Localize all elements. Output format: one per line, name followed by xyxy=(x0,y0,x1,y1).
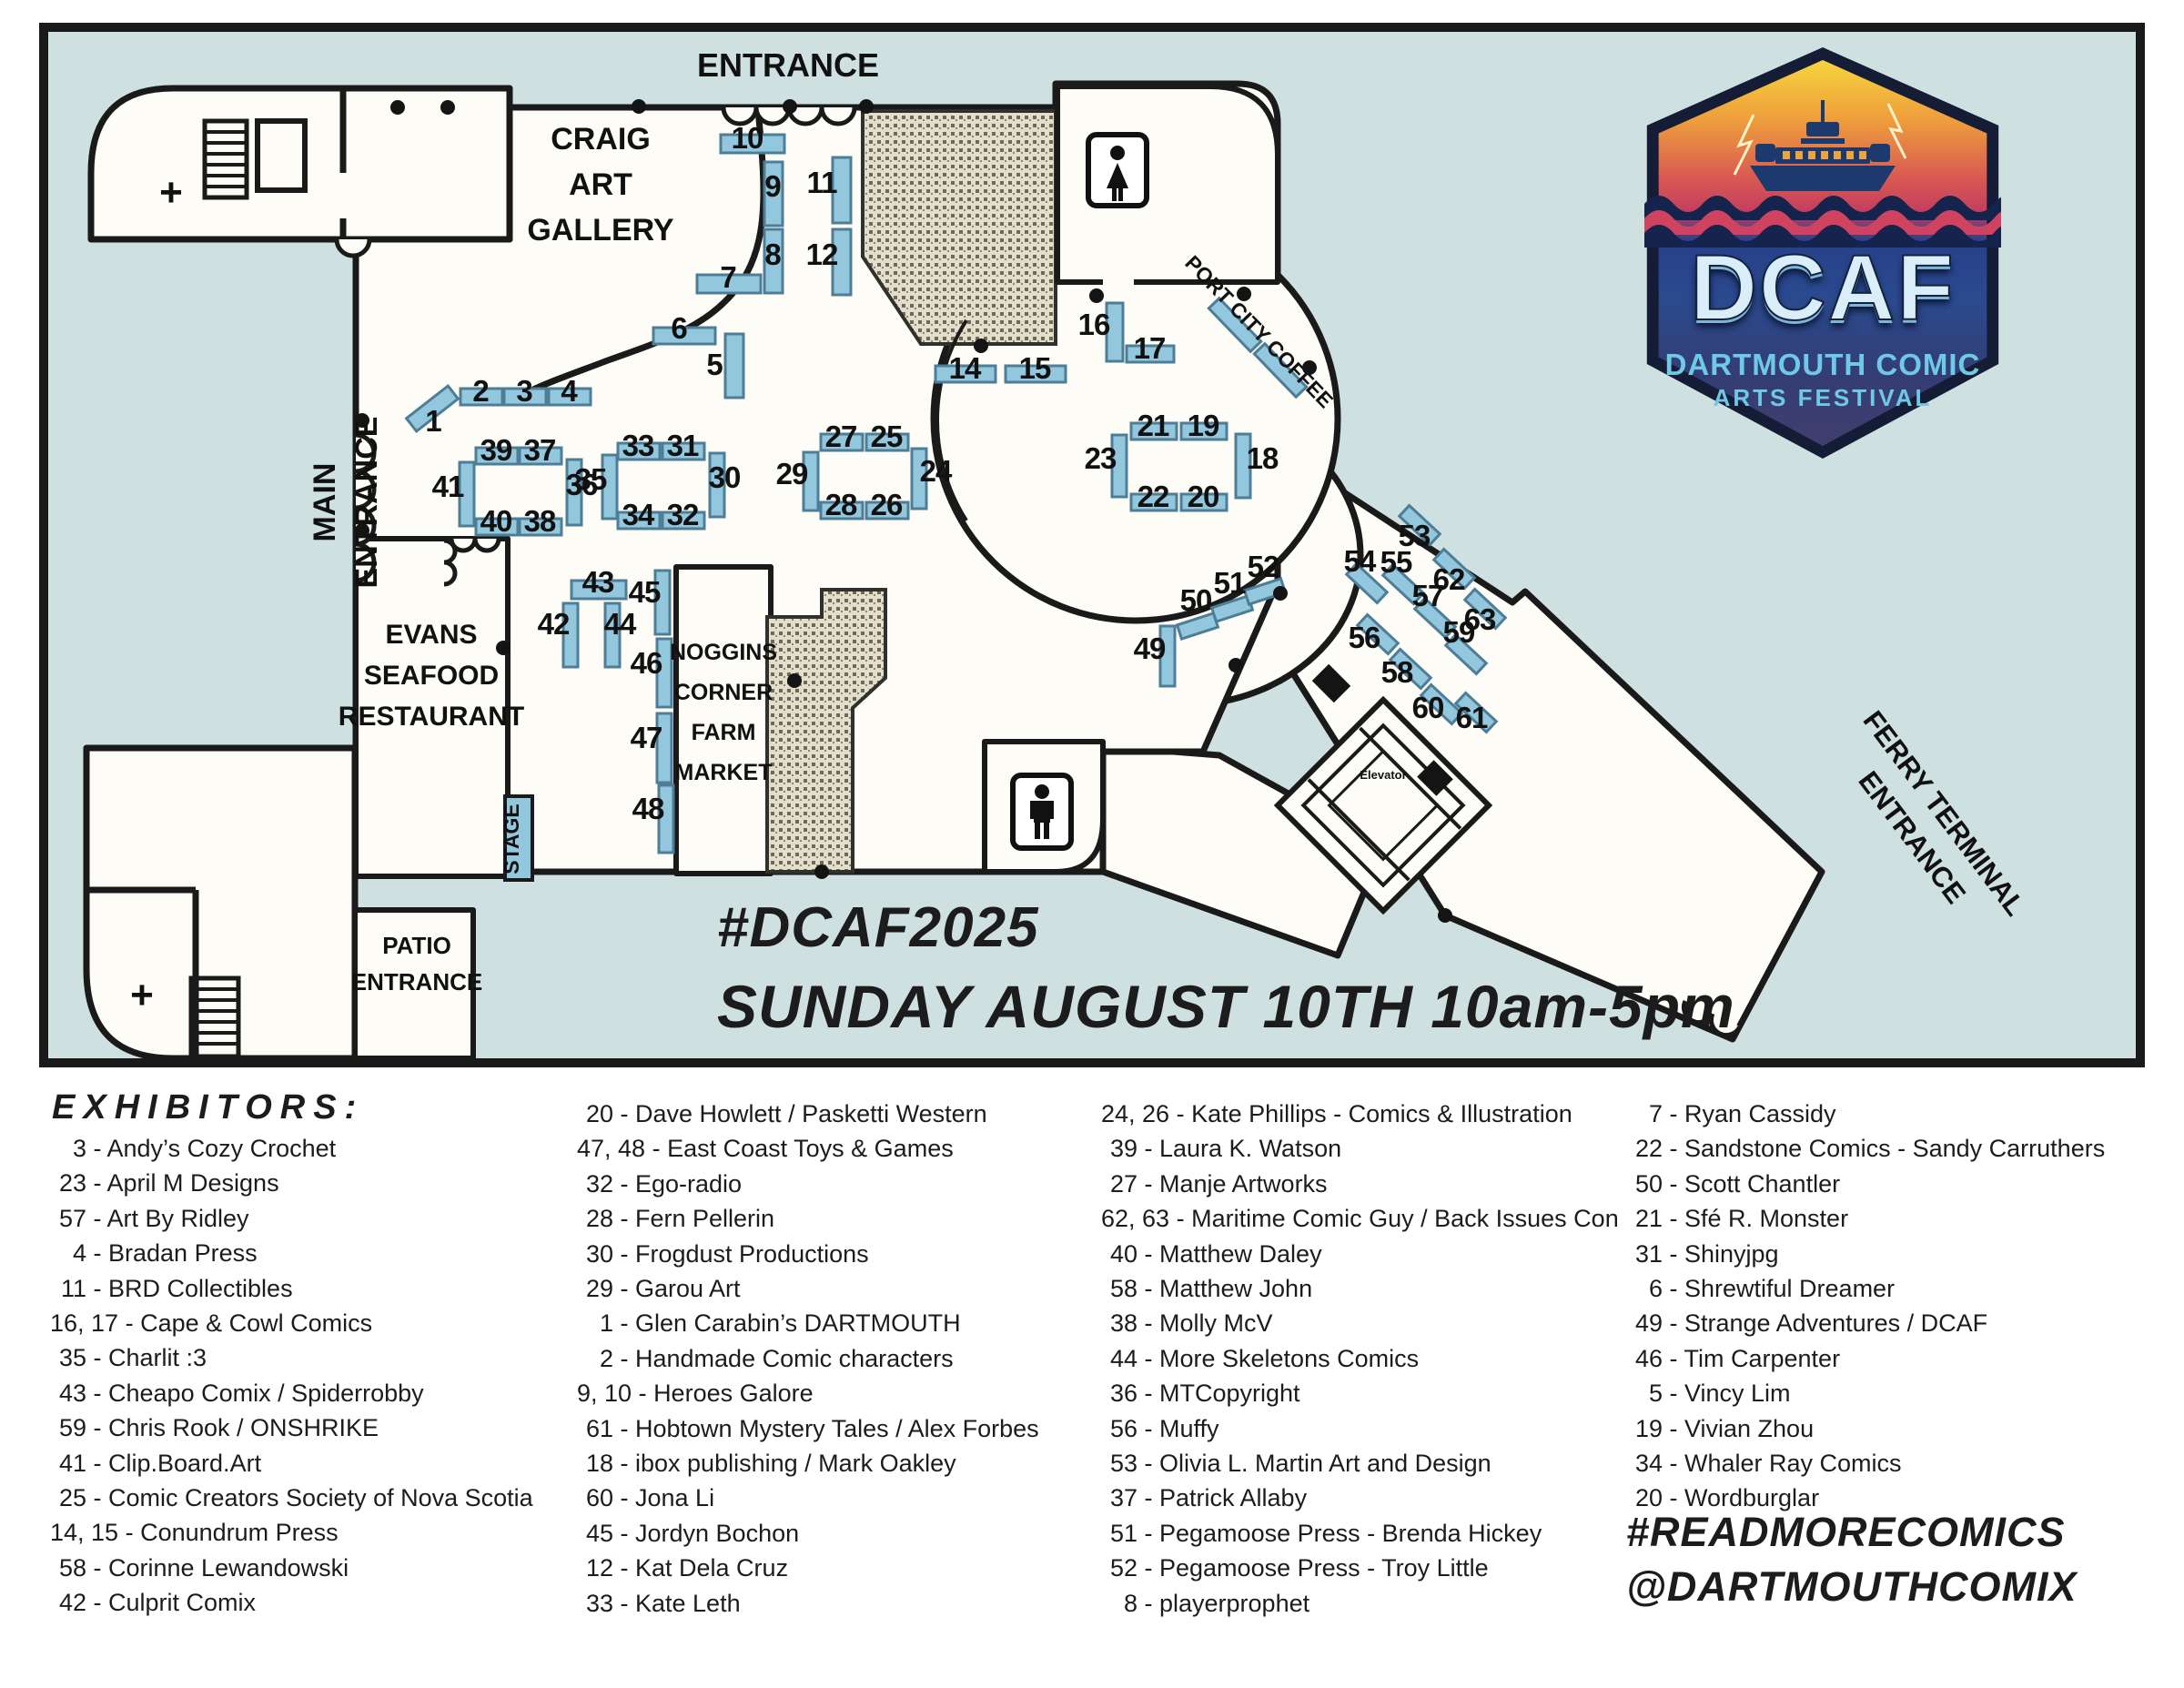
exhibitor-entry: 60 - Jona Li xyxy=(577,1481,1039,1515)
exhibitor-name: Kate Phillips - Comics & Illustration xyxy=(1191,1100,1572,1127)
exhibitor-name: Matthew Daley xyxy=(1159,1240,1322,1268)
exhibitor-table-number: 25 xyxy=(50,1481,86,1515)
exhibitor-separator: - xyxy=(613,1100,635,1127)
exhibitor-entry: 58 - Matthew John xyxy=(1101,1271,1619,1306)
table-label-8: 8 xyxy=(764,238,781,271)
table-label-1: 1 xyxy=(425,404,441,438)
exhibitor-separator: - xyxy=(632,1380,653,1407)
table-label-39: 39 xyxy=(480,433,512,467)
exhibitor-entry: 58 - Corinne Lewandowski xyxy=(50,1551,533,1585)
exhibitor-separator: - xyxy=(1137,1520,1159,1547)
exhibitor-separator: - xyxy=(1663,1240,1684,1268)
table-label-51: 51 xyxy=(1214,566,1246,600)
exhibitor-table-number: 27 xyxy=(1101,1167,1137,1201)
exhibitor-name: Tim Carpenter xyxy=(1684,1345,1841,1372)
exhibitor-entry: 40 - Matthew Daley xyxy=(1101,1237,1619,1271)
exhibitor-table-number: 9, 10 xyxy=(577,1376,632,1410)
exhibitor-name: Pegamoose Press - Brenda Hickey xyxy=(1159,1520,1542,1547)
exhibitor-table-number: 5 xyxy=(1626,1376,1663,1410)
exhibitor-name: Heroes Galore xyxy=(653,1380,814,1407)
exhibitor-name: Scott Chantler xyxy=(1684,1170,1840,1198)
exhibitor-separator: - xyxy=(1137,1450,1159,1477)
exhibitor-entry: 18 - ibox publishing / Mark Oakley xyxy=(577,1446,1039,1481)
table-label-32: 32 xyxy=(667,498,699,531)
table-label-38: 38 xyxy=(524,504,556,538)
exhibitor-name: Frogdust Productions xyxy=(635,1240,869,1268)
exhibitor-name: Shinyjpg xyxy=(1684,1240,1779,1268)
pillar-dot xyxy=(355,413,369,428)
exhibitor-name: Sfé R. Monster xyxy=(1684,1205,1848,1232)
exhibitor-table-number: 3 xyxy=(50,1131,86,1166)
exhibitor-entry: 11 - BRD Collectibles xyxy=(50,1271,533,1306)
pillar-dot xyxy=(1302,360,1317,375)
exhibitor-name: Kat Dela Cruz xyxy=(635,1554,788,1582)
table-label-18: 18 xyxy=(1247,441,1279,475)
exhibitor-table-number: 23 xyxy=(50,1166,86,1200)
exhibitor-name: East Coast Toys & Games xyxy=(667,1135,954,1162)
exhibitor-name: More Skeletons Comics xyxy=(1159,1345,1419,1372)
exhibitor-table-number: 19 xyxy=(1626,1411,1663,1446)
exhibitor-separator: - xyxy=(613,1205,635,1232)
exhibitor-entry: 1 - Glen Carabin’s DARTMOUTH xyxy=(577,1306,1039,1340)
pillar-dot xyxy=(440,100,455,115)
table-label-58: 58 xyxy=(1381,655,1413,689)
exhibitor-table-number: 6 xyxy=(1626,1271,1663,1306)
exhibitor-name: Conundrum Press xyxy=(140,1519,339,1546)
exhibitor-separator: - xyxy=(1663,1415,1684,1442)
exhibitor-name: Garou Art xyxy=(635,1275,741,1302)
exhibitor-name: Corinne Lewandowski xyxy=(108,1554,349,1582)
exhibitor-separator: - xyxy=(613,1309,635,1337)
pillar-dot xyxy=(390,100,405,115)
exhibitor-name: Sandstone Comics - Sandy Carruthers xyxy=(1684,1135,2105,1162)
exhibitor-name: April M Designs xyxy=(107,1169,279,1197)
date-line: SUNDAY AUGUST 10TH 10am-5pm xyxy=(717,972,1735,1041)
exhibitor-entry: 39 - Laura K. Watson xyxy=(1101,1131,1619,1166)
table-label-19: 19 xyxy=(1188,409,1219,442)
exhibitor-entry: 50 - Scott Chantler xyxy=(1626,1167,2105,1201)
dartmouthcomix-handle: @DARTMOUTHCOMIX xyxy=(1626,1563,2078,1611)
exhibitor-separator: - xyxy=(86,1589,108,1616)
exhibitor-entry: 49 - Strange Adventures / DCAF xyxy=(1626,1306,2105,1340)
exhibitor-entry: 31 - Shinyjpg xyxy=(1626,1237,2105,1271)
exhibitor-separator: - xyxy=(86,1275,108,1302)
exhibitor-table-number: 33 xyxy=(577,1586,613,1621)
pillar-dot xyxy=(1228,658,1243,672)
exhibitor-name: Bradan Press xyxy=(108,1239,258,1267)
pillar-dot xyxy=(783,99,797,114)
table-5 xyxy=(725,334,743,398)
table-label-44: 44 xyxy=(604,607,637,641)
exhibitor-entry: 62, 63 - Maritime Comic Guy / Back Issue… xyxy=(1101,1201,1619,1236)
table-label-28: 28 xyxy=(825,488,857,521)
table-label-34: 34 xyxy=(622,498,655,531)
table-label-14: 14 xyxy=(949,351,982,385)
exhibitor-name: Jona Li xyxy=(635,1484,714,1511)
exhibitor-entry: 30 - Frogdust Productions xyxy=(577,1237,1039,1271)
table-label-62: 62 xyxy=(1433,562,1465,596)
exhibitor-name: playerprophet xyxy=(1159,1590,1309,1617)
exhibitor-entry: 56 - Muffy xyxy=(1101,1411,1619,1446)
table-label-10: 10 xyxy=(732,121,763,155)
table-label-45: 45 xyxy=(629,575,661,609)
exhibitor-entry: 52 - Pegamoose Press - Troy Little xyxy=(1101,1551,1619,1585)
exhibitor-entry: 14, 15 - Conundrum Press xyxy=(50,1515,533,1550)
exhibitor-entry: 44 - More Skeletons Comics xyxy=(1101,1341,1619,1376)
exhibitor-entry: 16, 17 - Cape & Cowl Comics xyxy=(50,1306,533,1340)
exhibitor-table-number: 41 xyxy=(50,1446,86,1481)
exhibitor-entry: 47, 48 - East Coast Toys & Games xyxy=(577,1131,1039,1166)
exhibitor-separator: - xyxy=(1169,1100,1191,1127)
exhibitor-separator: - xyxy=(1663,1205,1684,1232)
table-label-26: 26 xyxy=(871,488,903,521)
exhibitor-table-number: 46 xyxy=(1626,1341,1663,1376)
exhibitor-table-number: 12 xyxy=(577,1551,613,1585)
exhibitor-entry: 51 - Pegamoose Press - Brenda Hickey xyxy=(1101,1516,1619,1551)
exhibitor-separator: - xyxy=(86,1344,108,1371)
exhibitor-name: Clip.Board.Art xyxy=(108,1450,261,1477)
exhibitor-entry: 41 - Clip.Board.Art xyxy=(50,1446,533,1481)
exhibitor-name: Vincy Lim xyxy=(1684,1380,1791,1407)
exhibitor-name: Art By Ridley xyxy=(107,1205,249,1232)
table-label-12: 12 xyxy=(806,238,838,271)
exhibitor-entry: 53 - Olivia L. Martin Art and Design xyxy=(1101,1446,1619,1481)
logo-main-text: DCAF xyxy=(1632,235,2014,341)
exhibitor-entry: 7 - Ryan Cassidy xyxy=(1626,1097,2105,1131)
table-label-25: 25 xyxy=(871,419,903,453)
exhibitor-separator: - xyxy=(613,1345,635,1372)
table-label-29: 29 xyxy=(776,457,808,490)
exhibitor-entry: 22 - Sandstone Comics - Sandy Carruthers xyxy=(1626,1131,2105,1166)
plus-sign-1: + xyxy=(159,170,183,215)
exhibitor-table-number: 31 xyxy=(1626,1237,1663,1271)
table-label-37: 37 xyxy=(524,433,556,467)
exhibitors-column-1: 3 - Andy’s Cozy Crochet23 - April M Desi… xyxy=(50,1131,533,1621)
exhibitor-separator: - xyxy=(1137,1170,1159,1198)
exhibitor-separator: - xyxy=(1663,1345,1684,1372)
exhibitor-table-number: 39 xyxy=(1101,1131,1137,1166)
exhibitor-name: Chris Rook / ONSHRIKE xyxy=(108,1414,379,1441)
exhibitor-table-number: 59 xyxy=(50,1410,86,1445)
plus-sign-2: + xyxy=(130,973,154,1017)
exhibitor-separator: - xyxy=(1137,1415,1159,1442)
exhibitor-entry: 38 - Molly McV xyxy=(1101,1306,1619,1340)
ferry-icon xyxy=(1750,100,1896,191)
exhibitor-name: Manje Artworks xyxy=(1159,1170,1328,1198)
table-label-11: 11 xyxy=(807,166,838,199)
exhibitor-separator: - xyxy=(86,1205,107,1232)
exhibitor-name: Olivia L. Martin Art and Design xyxy=(1159,1450,1491,1477)
elevator-label: Elevator xyxy=(1360,768,1406,782)
logo-subtitle-2: ARTS FESTIVAL xyxy=(1632,384,2014,412)
table-label-63: 63 xyxy=(1464,602,1496,636)
table-label-23: 23 xyxy=(1085,441,1117,475)
table-label-48: 48 xyxy=(632,792,664,825)
exhibitor-name: Strange Adventures / DCAF xyxy=(1684,1309,1987,1337)
exhibitor-separator: - xyxy=(1663,1484,1684,1511)
exhibitor-table-number: 20 xyxy=(577,1097,613,1131)
exhibitor-separator: - xyxy=(86,1380,108,1407)
exhibitor-separator: - xyxy=(613,1590,635,1617)
exhibitor-entry: 46 - Tim Carpenter xyxy=(1626,1341,2105,1376)
pillar-dot xyxy=(859,99,874,114)
exhibitor-entry: 2 - Handmade Comic characters xyxy=(577,1341,1039,1376)
exhibitor-name: Ego-radio xyxy=(635,1170,742,1198)
exhibitor-separator: - xyxy=(1137,1380,1159,1407)
table-label-50: 50 xyxy=(1180,583,1212,617)
exhibitor-name: Laura K. Watson xyxy=(1159,1135,1341,1162)
table-label-60: 60 xyxy=(1412,691,1444,724)
exhibitor-entry: 33 - Kate Leth xyxy=(577,1586,1039,1621)
exhibitor-separator: - xyxy=(1169,1205,1191,1232)
pillar-dot xyxy=(814,864,829,879)
table-label-27: 27 xyxy=(825,419,857,453)
exhibitor-entry: 43 - Cheapo Comix / Spiderrobby xyxy=(50,1376,533,1410)
table-label-22: 22 xyxy=(1137,480,1169,513)
table-label-17: 17 xyxy=(1134,331,1166,365)
lightning-icon xyxy=(1888,104,1906,158)
exhibitor-table-number: 42 xyxy=(50,1585,86,1620)
table-label-49: 49 xyxy=(1134,632,1166,665)
exhibitor-separator: - xyxy=(1137,1484,1159,1511)
exhibitor-table-number: 35 xyxy=(50,1340,86,1375)
table-label-30: 30 xyxy=(709,460,741,494)
exhibitor-separator: - xyxy=(613,1240,635,1268)
table-label-43: 43 xyxy=(582,565,614,599)
exhibitor-name: Vivian Zhou xyxy=(1684,1415,1814,1442)
mens-restroom xyxy=(985,742,1103,872)
hashtag-title: #DCAF2025 xyxy=(717,895,1039,960)
exhibitor-separator: - xyxy=(1137,1309,1159,1337)
exhibitor-separator: - xyxy=(1663,1170,1684,1198)
exhibitor-separator: - xyxy=(1137,1240,1159,1268)
exhibitor-separator: - xyxy=(86,1414,108,1441)
exhibitor-name: Charlit :3 xyxy=(108,1344,207,1371)
exhibitor-table-number: 34 xyxy=(1626,1446,1663,1481)
exhibitor-table-number: 11 xyxy=(50,1271,86,1306)
exhibitor-table-number: 60 xyxy=(577,1481,613,1515)
exhibitor-separator: - xyxy=(86,1554,108,1582)
exhibitor-entry: 3 - Andy’s Cozy Crochet xyxy=(50,1131,533,1166)
exhibitor-table-number: 22 xyxy=(1626,1131,1663,1166)
exhibitor-name: Shrewtiful Dreamer xyxy=(1684,1275,1895,1302)
exhibitor-table-number: 47, 48 xyxy=(577,1131,645,1166)
exhibitor-name: BRD Collectibles xyxy=(108,1275,293,1302)
table-label-33: 33 xyxy=(622,429,654,462)
pillar-dot xyxy=(974,339,988,353)
exhibitor-table-number: 1 xyxy=(577,1306,613,1340)
pillar-dot xyxy=(496,641,511,655)
exhibitor-name: Maritime Comic Guy / Back Issues Con xyxy=(1191,1205,1619,1232)
exhibitors-column-2: 20 - Dave Howlett / Pasketti Western47, … xyxy=(577,1097,1039,1621)
table-label-36: 36 xyxy=(566,468,598,501)
exhibitor-entry: 6 - Shrewtiful Dreamer xyxy=(1626,1271,2105,1306)
table-label-31: 31 xyxy=(667,429,699,462)
exhibitor-table-number: 38 xyxy=(1101,1306,1137,1340)
table-label-5: 5 xyxy=(706,348,723,381)
exhibitor-entry: 12 - Kat Dela Cruz xyxy=(577,1551,1039,1585)
exhibitor-separator: - xyxy=(86,1169,107,1197)
exhibitor-separator: - xyxy=(1663,1450,1684,1477)
table-label-16: 16 xyxy=(1078,308,1110,341)
exhibitor-entry: 57 - Art By Ridley xyxy=(50,1201,533,1236)
exhibitor-table-number: 50 xyxy=(1626,1167,1663,1201)
table-label-42: 42 xyxy=(538,607,570,641)
exhibitor-entry: 20 - Dave Howlett / Pasketti Western xyxy=(577,1097,1039,1131)
exhibitor-name: Cape & Cowl Comics xyxy=(140,1309,372,1337)
exhibitor-separator: - xyxy=(613,1170,635,1198)
exhibitor-table-number: 43 xyxy=(50,1376,86,1410)
table-label-41: 41 xyxy=(432,470,464,503)
exhibitor-table-number: 24, 26 xyxy=(1101,1097,1169,1131)
exhibitor-table-number: 4 xyxy=(50,1236,86,1270)
table-label-46: 46 xyxy=(631,646,662,680)
exhibitor-table-number: 36 xyxy=(1101,1376,1137,1410)
exhibitor-name: Matthew John xyxy=(1159,1275,1312,1302)
exhibitor-entry: 4 - Bradan Press xyxy=(50,1236,533,1270)
table-label-9: 9 xyxy=(764,169,781,203)
pillar-dot xyxy=(1438,908,1452,923)
exhibitor-entry: 5 - Vincy Lim xyxy=(1626,1376,2105,1410)
exhibitor-name: MTCopyright xyxy=(1159,1380,1300,1407)
entrance-label: ENTRANCE xyxy=(697,46,879,84)
exhibitor-name: Molly McV xyxy=(1159,1309,1273,1337)
exhibitor-table-number: 18 xyxy=(577,1446,613,1481)
exhibitor-name: Culprit Comix xyxy=(108,1589,256,1616)
exhibitor-entry: 25 - Comic Creators Society of Nova Scot… xyxy=(50,1481,533,1515)
exhibitor-entry: 29 - Garou Art xyxy=(577,1271,1039,1306)
exhibitor-separator: - xyxy=(118,1309,140,1337)
exhibitor-table-number: 58 xyxy=(1101,1271,1137,1306)
exhibitor-table-number: 51 xyxy=(1101,1516,1137,1551)
pillar-dot xyxy=(1237,287,1251,301)
exhibitor-table-number: 8 xyxy=(1101,1586,1137,1621)
stage-label: STAGE xyxy=(500,804,523,874)
exhibitor-name: ibox publishing / Mark Oakley xyxy=(635,1450,956,1477)
exhibitor-entry: 24, 26 - Kate Phillips - Comics & Illust… xyxy=(1101,1097,1619,1131)
exhibitor-separator: - xyxy=(1663,1275,1684,1302)
table-label-52: 52 xyxy=(1248,550,1279,583)
pillar-dot xyxy=(632,99,646,114)
exhibitor-separator: - xyxy=(118,1519,140,1546)
exhibitor-separator: - xyxy=(645,1135,667,1162)
exhibitor-name: Whaler Ray Comics xyxy=(1684,1450,1902,1477)
exhibitor-table-number: 61 xyxy=(577,1411,613,1446)
exhibitor-separator: - xyxy=(86,1484,108,1511)
exhibitor-entry: 59 - Chris Rook / ONSHRIKE xyxy=(50,1410,533,1445)
exhibitor-name: Fern Pellerin xyxy=(635,1205,774,1232)
table-label-61: 61 xyxy=(1456,701,1488,734)
readmorecomics-hashtag: #READMORECOMICS xyxy=(1626,1509,2066,1556)
exhibitors-column-4: 7 - Ryan Cassidy22 - Sandstone Comics - … xyxy=(1626,1097,2105,1516)
exhibitor-table-number: 32 xyxy=(577,1167,613,1201)
table-label-15: 15 xyxy=(1019,351,1051,385)
pillar-dot xyxy=(355,523,369,538)
exhibitor-name: Ryan Cassidy xyxy=(1684,1100,1836,1127)
exhibitor-entry: 9, 10 - Heroes Galore xyxy=(577,1376,1039,1410)
exhibitor-separator: - xyxy=(613,1554,635,1582)
exhibitor-separator: - xyxy=(1663,1135,1684,1162)
exhibitor-entry: 34 - Whaler Ray Comics xyxy=(1626,1446,2105,1481)
exhibitor-table-number: 49 xyxy=(1626,1306,1663,1340)
womens-restroom-door xyxy=(1103,276,1134,287)
exhibitor-name: Handmade Comic characters xyxy=(635,1345,954,1372)
exhibitor-separator: - xyxy=(86,1239,108,1267)
exhibitor-table-number: 40 xyxy=(1101,1237,1137,1271)
exhibitor-name: Patrick Allaby xyxy=(1159,1484,1307,1511)
exhibitor-table-number: 21 xyxy=(1626,1201,1663,1236)
exhibitor-table-number: 52 xyxy=(1101,1551,1137,1585)
table-label-54: 54 xyxy=(1344,544,1377,578)
table-label-55: 55 xyxy=(1380,545,1412,579)
table-label-56: 56 xyxy=(1349,621,1380,654)
exhibitor-entry: 19 - Vivian Zhou xyxy=(1626,1411,2105,1446)
table-label-7: 7 xyxy=(720,260,735,294)
exhibitor-separator: - xyxy=(1137,1345,1159,1372)
pillar-dot xyxy=(787,673,802,688)
exhibitor-separator: - xyxy=(613,1450,635,1477)
exhibitor-separator: - xyxy=(1663,1380,1684,1407)
table-label-6: 6 xyxy=(671,311,687,345)
exhibitor-entry: 28 - Fern Pellerin xyxy=(577,1201,1039,1236)
table-label-47: 47 xyxy=(631,721,662,754)
exhibitor-table-number: 14, 15 xyxy=(50,1515,118,1550)
exhibitor-separator: - xyxy=(1137,1275,1159,1302)
exhibitor-separator: - xyxy=(1663,1100,1684,1127)
exhibitor-separator: - xyxy=(86,1450,108,1477)
pillar-dot xyxy=(1273,586,1288,601)
exhibitor-table-number: 56 xyxy=(1101,1411,1137,1446)
exhibitor-entry: 37 - Patrick Allaby xyxy=(1101,1481,1619,1515)
exhibitor-name: Glen Carabin’s DARTMOUTH xyxy=(635,1309,961,1337)
table-label-3: 3 xyxy=(516,374,532,408)
womens-restroom xyxy=(1057,86,1278,287)
exhibitor-entry: 61 - Hobtown Mystery Tales / Alex Forbes xyxy=(577,1411,1039,1446)
exhibitors-heading: EXHIBITORS: xyxy=(52,1088,364,1127)
exhibitor-entry: 8 - playerprophet xyxy=(1101,1586,1619,1621)
exhibitor-separator: - xyxy=(1137,1135,1159,1162)
table-label-2: 2 xyxy=(472,374,489,408)
exhibitor-separator: - xyxy=(1663,1309,1684,1337)
exhibitor-name: Comic Creators Society of Nova Scotia xyxy=(108,1484,533,1511)
exhibitor-name: Hobtown Mystery Tales / Alex Forbes xyxy=(635,1415,1039,1442)
exhibitor-entry: 21 - Sfé R. Monster xyxy=(1626,1201,2105,1236)
exhibitor-separator: - xyxy=(613,1415,635,1442)
exhibitor-separator: - xyxy=(1137,1554,1159,1582)
exhibitor-separator: - xyxy=(86,1135,107,1162)
exhibitor-name: Jordyn Bochon xyxy=(635,1520,799,1547)
exhibitor-table-number: 44 xyxy=(1101,1341,1137,1376)
exhibitor-name: Wordburglar xyxy=(1684,1484,1819,1511)
exhibitor-table-number: 7 xyxy=(1626,1097,1663,1131)
exhibitor-name: Muffy xyxy=(1159,1415,1219,1442)
exhibitor-table-number: 28 xyxy=(577,1201,613,1236)
table-label-40: 40 xyxy=(480,504,512,538)
table-label-20: 20 xyxy=(1188,480,1219,513)
table-label-24: 24 xyxy=(920,454,953,488)
exhibitor-entry: 36 - MTCopyright xyxy=(1101,1376,1619,1410)
exhibitor-entry: 32 - Ego-radio xyxy=(577,1167,1039,1201)
exhibitor-table-number: 2 xyxy=(577,1341,613,1376)
exhibitors-column-3: 24, 26 - Kate Phillips - Comics & Illust… xyxy=(1101,1097,1619,1621)
logo-subtitle-1: DARTMOUTH COMIC xyxy=(1632,348,2014,382)
exhibitor-separator: - xyxy=(613,1484,635,1511)
exhibitor-table-number: 53 xyxy=(1101,1446,1137,1481)
table-label-21: 21 xyxy=(1137,409,1169,442)
exhibitor-name: Pegamoose Press - Troy Little xyxy=(1159,1554,1489,1582)
exhibitor-entry: 27 - Manje Artworks xyxy=(1101,1167,1619,1201)
pillar-dot xyxy=(1089,288,1104,303)
